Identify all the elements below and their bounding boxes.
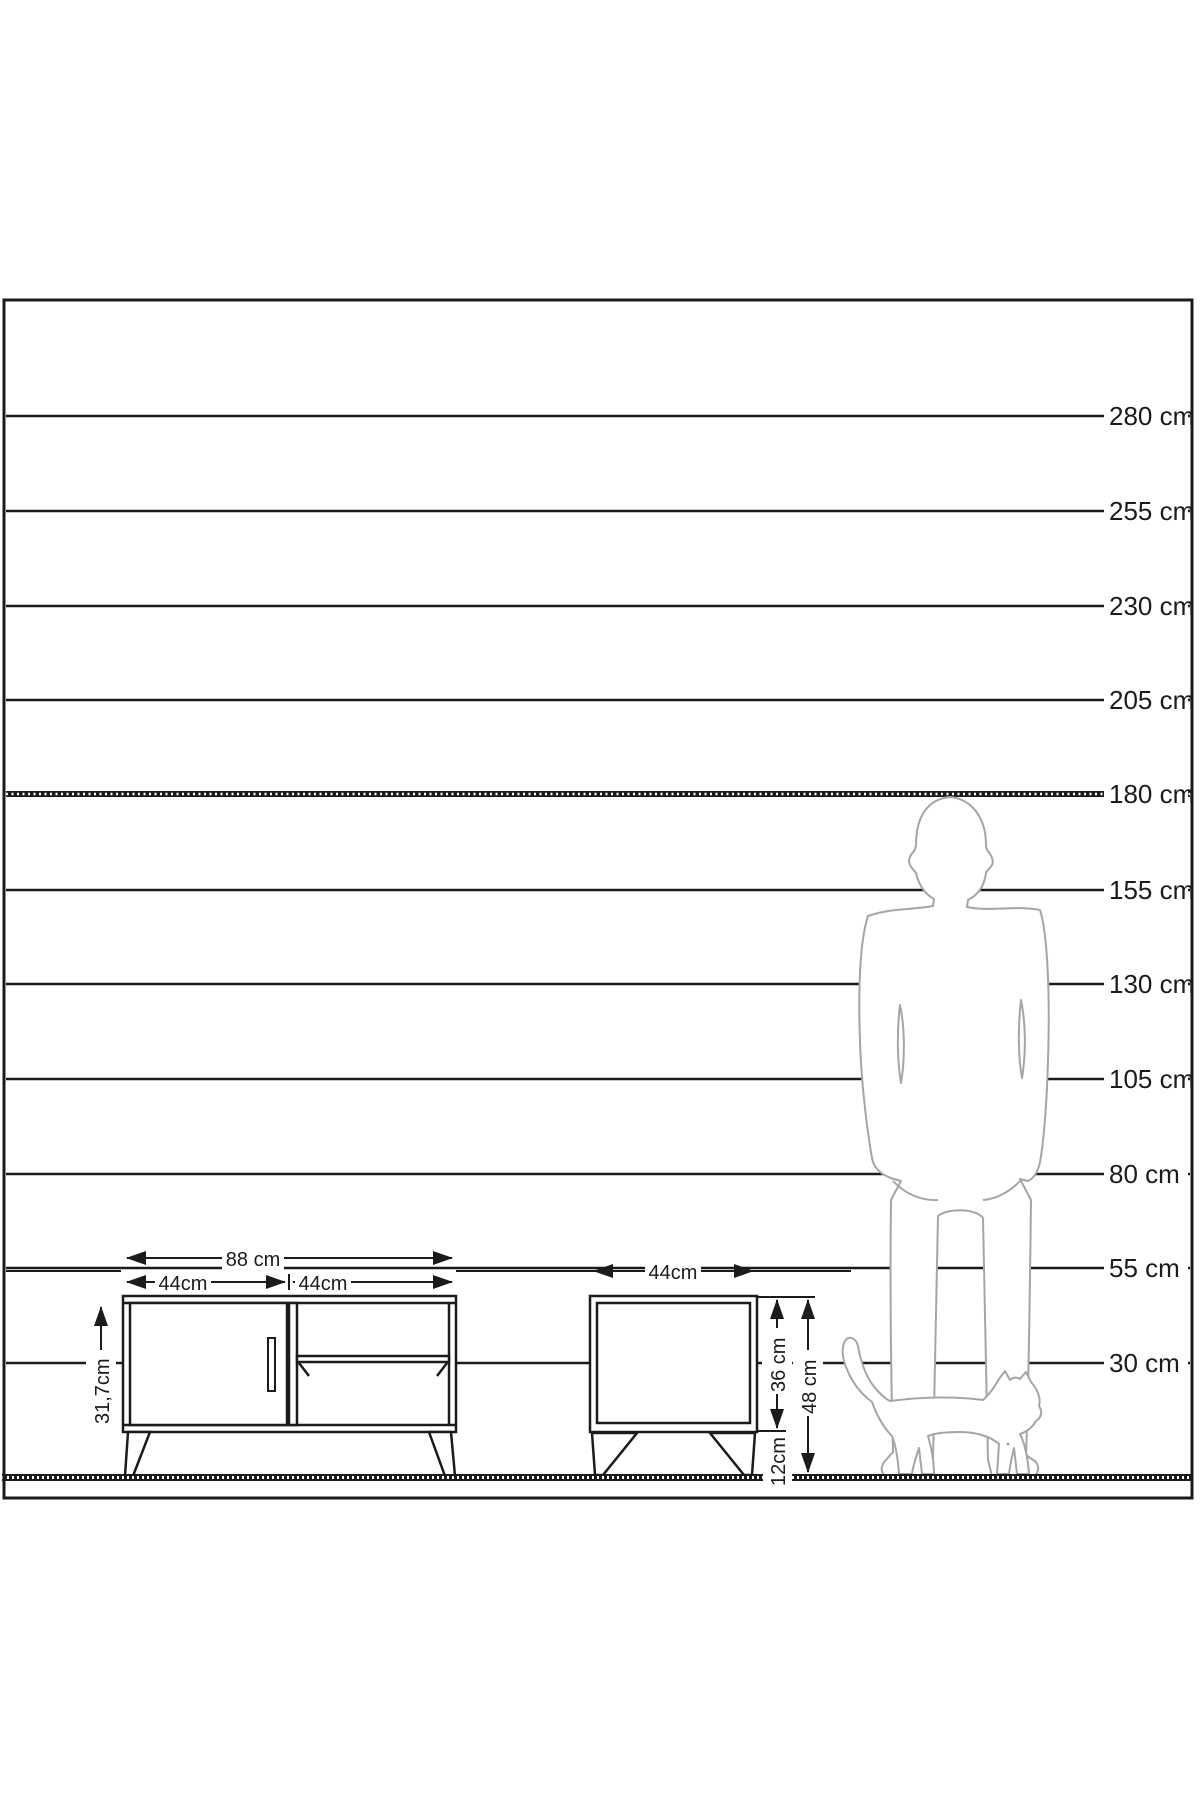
nightstand [590, 1296, 757, 1475]
scale-label-130: 130 cm [1109, 969, 1194, 999]
scale-label-55: 55 cm [1109, 1253, 1180, 1283]
tv-stand-shelf-width-label: 44cm [299, 1273, 348, 1295]
arm-gap-left [898, 1005, 904, 1083]
nightstand-front [597, 1303, 750, 1423]
diagram-svg: 88 cm 44cm 44cm 31,7cm 44cm 36 cm 48 cm [0, 0, 1200, 1800]
scale-label-155: 155 cm [1109, 875, 1194, 905]
tv-stand-shelf [297, 1356, 449, 1362]
scale-label-230: 230 cm [1109, 591, 1194, 621]
tv-stand [123, 1296, 456, 1476]
scale-label-80: 80 cm [1109, 1159, 1180, 1189]
man-silhouette [859, 797, 1048, 1476]
scale-label-280: 280 cm [1109, 401, 1194, 431]
nightstand-body-height-label: 36 cm [768, 1338, 790, 1392]
tv-stand-width-label: 88 cm [226, 1249, 280, 1271]
scale-label-30: 30 cm [1109, 1348, 1180, 1378]
tv-stand-leg-right [429, 1432, 455, 1476]
cat-shoulder-dot [1007, 1443, 1010, 1446]
nightstand-leg-left [592, 1433, 637, 1475]
height-scale-labels: 280 cm 255 cm 230 cm 205 cm 180 cm 155 c… [1104, 400, 1194, 1379]
tv-stand-interior-height-label: 31,7cm [92, 1358, 114, 1424]
scale-line-180-dotted [6, 791, 1190, 797]
tv-stand-leg-left [125, 1432, 150, 1476]
arm-gap-right [1019, 1000, 1025, 1078]
door-handle [268, 1338, 275, 1391]
nightstand-width-label: 44cm [649, 1262, 698, 1284]
nightstand-total-height-label: 48 cm [799, 1360, 821, 1414]
scale-label-255: 255 cm [1109, 496, 1194, 526]
furniture-dimension-diagram: 88 cm 44cm 44cm 31,7cm 44cm 36 cm 48 cm [0, 0, 1200, 1800]
scale-label-205: 205 cm [1109, 685, 1194, 715]
scale-label-105: 105 cm [1109, 1064, 1194, 1094]
tv-stand-door-width-label: 44cm [159, 1273, 208, 1295]
nightstand-leg-height-label: 12cm [768, 1437, 790, 1486]
tv-stand-divider [289, 1303, 297, 1425]
nightstand-leg-right [710, 1433, 755, 1475]
scale-label-180: 180 cm [1109, 779, 1194, 809]
ground-line [2, 1474, 1192, 1481]
tv-stand-door [130, 1303, 287, 1425]
nightstand-leg-height: 12cm [763, 1432, 792, 1488]
